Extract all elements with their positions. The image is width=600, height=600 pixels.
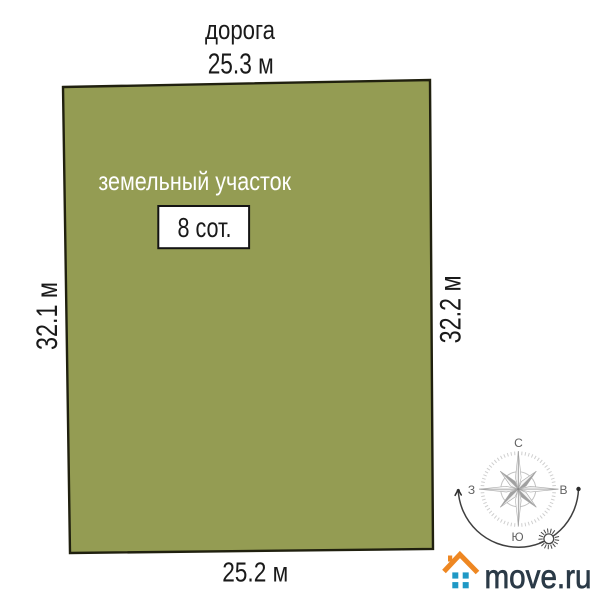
svg-text:земельный участок: земельный участок [98, 166, 291, 196]
svg-text:8 сот.: 8 сот. [178, 212, 232, 243]
svg-text:дорога: дорога [205, 15, 276, 45]
svg-text:С: С [514, 436, 523, 450]
svg-text:25.2 м: 25.2 м [222, 556, 288, 587]
svg-text:В: В [559, 483, 567, 497]
svg-text:25.3 м: 25.3 м [208, 49, 274, 81]
svg-text:Ю: Ю [511, 530, 523, 544]
svg-text:32.1 м: 32.1 м [31, 282, 64, 350]
svg-text:32.2 м: 32.2 м [434, 275, 467, 343]
svg-text:З: З [468, 483, 475, 497]
svg-text:move.ru: move.ru [485, 558, 592, 595]
